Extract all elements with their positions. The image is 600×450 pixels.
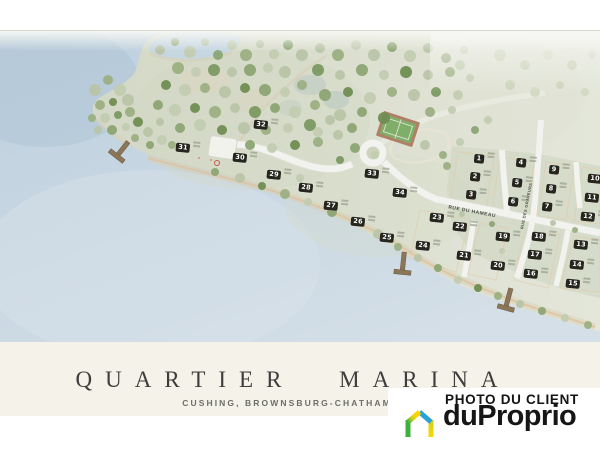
- lot-marker-18: 18: [531, 232, 546, 243]
- lot-marker-3: 3: [466, 190, 477, 200]
- listing-image: RUE DU HAMEAU RUE DES GRAVEURS 123456789…: [0, 0, 600, 450]
- lot-marker-9: 9: [549, 165, 560, 175]
- lot-marker-23: 23: [429, 213, 444, 224]
- duproprio-house-icon: [403, 408, 436, 438]
- lot-marker-1: 1: [474, 154, 485, 164]
- lot-marker-25: 25: [379, 233, 394, 244]
- lot-marker-10: 10: [587, 174, 600, 185]
- street-label-rue-du-hameau: RUE DU HAMEAU: [448, 205, 496, 219]
- duproprio-wordmark: duProprio: [443, 402, 576, 431]
- lot-marker-19: 19: [495, 232, 510, 243]
- lot-marker-11: 11: [584, 193, 599, 204]
- lot-marker-26: 26: [350, 217, 365, 228]
- lot-marker-30: 30: [232, 153, 247, 164]
- lot-marker-33: 33: [364, 169, 379, 180]
- lot-marker-24: 24: [415, 241, 430, 252]
- lot-marker-14: 14: [569, 260, 584, 271]
- lot-marker-4: 4: [516, 158, 527, 168]
- duproprio-watermark: PHOTO DU CLIENT duProprio: [388, 388, 600, 450]
- lot-marker-21: 21: [456, 251, 471, 262]
- lot-marker-31: 31: [175, 143, 190, 154]
- lot-marker-22: 22: [452, 222, 467, 233]
- lot-marker-5: 5: [512, 178, 523, 188]
- lot-marker-16: 16: [523, 269, 538, 280]
- lot-marker-17: 17: [527, 250, 542, 261]
- lot-marker-6: 6: [508, 197, 519, 207]
- lot-marker-32: 32: [253, 120, 268, 131]
- lot-marker-15: 15: [565, 279, 580, 290]
- lot-marker-12: 12: [580, 212, 595, 223]
- lot-marker-2: 2: [470, 172, 481, 182]
- lot-marker-27: 27: [323, 201, 338, 212]
- lot-marker-13: 13: [573, 240, 588, 251]
- lot-marker-8: 8: [546, 184, 557, 194]
- lot-marker-20: 20: [490, 261, 505, 272]
- lot-marker-7: 7: [542, 202, 553, 212]
- street-label-rue-des-graveurs: RUE DES GRAVEURS: [521, 182, 534, 229]
- lot-marker-29: 29: [266, 170, 281, 181]
- lot-marker-28: 28: [298, 183, 313, 194]
- lot-marker-34: 34: [392, 188, 407, 199]
